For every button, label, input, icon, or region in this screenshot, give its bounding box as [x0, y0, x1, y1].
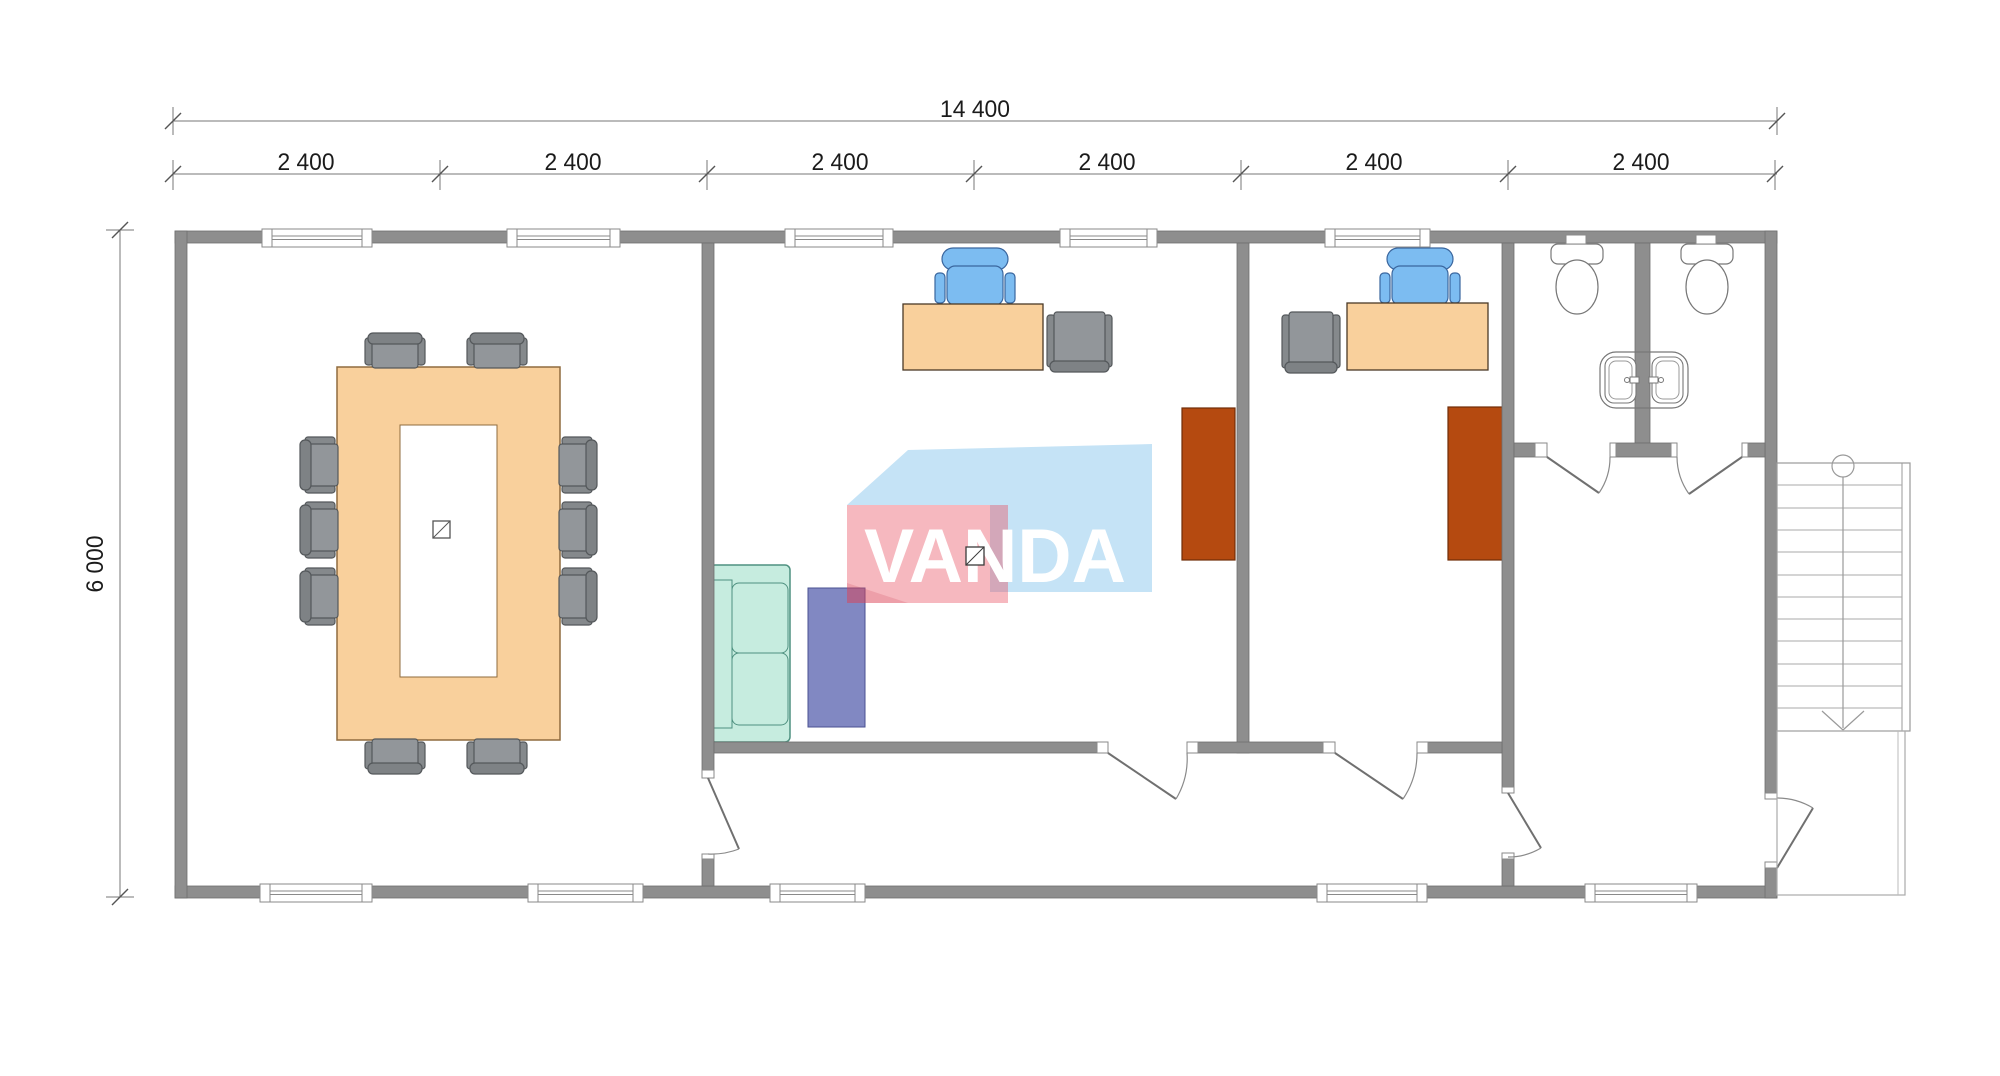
wall-conference-office1 [702, 243, 714, 770]
door-leaf [1689, 457, 1742, 494]
office1-desk-chair-armrest [1005, 273, 1015, 303]
rug [808, 588, 865, 727]
wall-corridor-b [1198, 742, 1323, 753]
door-jamb [1502, 787, 1514, 793]
floor-plan: VANDA14 4002 4002 4002 4002 4002 4002 40… [0, 0, 2000, 1076]
window-bottom-frame [528, 884, 643, 902]
conference-chair-back [300, 571, 311, 622]
cistern-button [1696, 235, 1716, 244]
office1-desk-chair-seat [947, 266, 1003, 305]
watermark-text: VANDA [864, 514, 1126, 599]
door-jamb [1417, 742, 1428, 753]
window-bottom-jamb [633, 884, 643, 902]
door-leaf [1547, 457, 1599, 493]
door-swing-arc [1403, 753, 1417, 799]
window-bottom-frame [770, 884, 865, 902]
dim-label-bay: 2 400 [1079, 149, 1136, 176]
window-bottom-frame [1317, 884, 1427, 902]
window-top-jamb [1147, 229, 1157, 247]
door-swing-arc [1599, 457, 1610, 493]
conference-chair-seat [559, 509, 590, 551]
door-jamb [1742, 443, 1748, 457]
office2-desk [1347, 303, 1488, 370]
office2-desk-chair-seat [1392, 266, 1448, 305]
window-bottom-jamb [770, 884, 780, 902]
wall-bath-divider [1635, 243, 1650, 443]
faucet [1649, 377, 1658, 383]
window-top-frame [785, 229, 893, 247]
office1-wardrobe [1182, 408, 1235, 560]
wall-bath-south-c [1748, 443, 1765, 457]
window-top-jamb [610, 229, 620, 247]
window-bottom-jamb [1585, 884, 1595, 902]
window-top-jamb [883, 229, 893, 247]
window-bottom-frame [260, 884, 372, 902]
dim-label-bay: 2 400 [1613, 149, 1670, 176]
wall-exterior-top [175, 231, 1777, 243]
conference-chair-back [368, 333, 422, 344]
conference-chair-back [586, 505, 597, 555]
conference-chair-back [586, 571, 597, 622]
dim-label-bay: 2 400 [812, 149, 869, 176]
window-top-jamb [1060, 229, 1070, 247]
wall-conference-stub [702, 859, 714, 886]
office2-desk-chair-armrest [1450, 273, 1460, 303]
window-top-jamb [262, 229, 272, 247]
door-swing-arc [1677, 457, 1689, 494]
conference-chair-seat [307, 444, 338, 486]
window-bottom-jamb [1687, 884, 1697, 902]
dim-label-total: 14 400 [940, 96, 1010, 123]
door-jamb [1765, 862, 1777, 868]
office1-side-chair-back [1050, 361, 1109, 372]
window-top-frame [262, 229, 372, 247]
wall-exterior-right-upper [1765, 231, 1777, 799]
dim-label-bay: 2 400 [1346, 149, 1403, 176]
wall-bath-south-a [1514, 443, 1535, 457]
cistern-button [1566, 235, 1586, 244]
window-top-frame [507, 229, 620, 247]
door-leaf [1335, 753, 1403, 799]
door-leaf [1777, 808, 1813, 868]
door-jamb [1097, 742, 1108, 753]
door-leaf [708, 778, 739, 849]
window-top-jamb [507, 229, 517, 247]
window-top-jamb [1325, 229, 1335, 247]
door-swing-arc [1176, 753, 1187, 799]
window-bottom-frame [1585, 884, 1697, 902]
wall-corridor-a [714, 742, 1097, 753]
window-bottom-jamb [528, 884, 538, 902]
wall-office2-bath [1502, 243, 1514, 787]
floor-plan-page: VANDA14 4002 4002 4002 4002 4002 4002 40… [0, 0, 2000, 1076]
wall-exterior-bottom [175, 886, 1777, 898]
office1-desk [903, 304, 1043, 370]
office2-side-chair-back [1285, 362, 1337, 373]
conference-chair-back [368, 763, 422, 774]
conference-chair-back [470, 333, 524, 344]
faucet [1630, 377, 1639, 383]
window-top-jamb [1420, 229, 1430, 247]
wall-exterior-left [175, 231, 187, 898]
dim-label-bay: 2 400 [545, 149, 602, 176]
sofa-cushion [732, 653, 788, 725]
wall-exterior-right-lower [1765, 868, 1777, 898]
toilet-bowl [1556, 260, 1598, 314]
conference-table-center-opening [400, 425, 497, 677]
window-top-frame [1325, 229, 1430, 247]
conference-chair-seat [559, 575, 590, 618]
conference-chair-back [586, 440, 597, 490]
conference-chair-seat [307, 575, 338, 618]
door-leaf [1508, 793, 1541, 848]
office2-side-chair-seat [1289, 312, 1333, 366]
window-top-frame [1060, 229, 1157, 247]
window-bottom-jamb [362, 884, 372, 902]
conference-chair-back [300, 505, 311, 555]
window-top-jamb [785, 229, 795, 247]
stair-landing [1777, 731, 1905, 895]
door-jamb [702, 854, 714, 859]
office2-wardrobe [1448, 407, 1503, 560]
office1-desk-chair-armrest [935, 273, 945, 303]
office2-desk-chair-armrest [1380, 273, 1390, 303]
wall-corridor-c [1428, 742, 1502, 753]
door-leaf [1108, 753, 1176, 799]
conference-chair-back [470, 763, 524, 774]
window-bottom-jamb [1317, 884, 1327, 902]
door-jamb [1671, 443, 1677, 457]
window-bottom-jamb [855, 884, 865, 902]
dim-label-bay: 2 400 [278, 149, 335, 176]
office1-side-chair-seat [1054, 312, 1105, 365]
door-jamb [1187, 742, 1198, 753]
door-swing-arc [708, 849, 739, 854]
conference-chair-seat [559, 444, 590, 486]
wall-office2-bath-stub [1502, 859, 1514, 886]
window-bottom-jamb [1417, 884, 1427, 902]
conference-chair-seat [307, 509, 338, 551]
window-bottom-jamb [260, 884, 270, 902]
door-jamb [1535, 443, 1547, 457]
door-swing-arc [1777, 798, 1813, 808]
door-jamb [1502, 853, 1514, 859]
door-jamb [1323, 742, 1335, 753]
door-jamb [1765, 793, 1777, 799]
door-jamb [1610, 443, 1616, 457]
window-top-jamb [362, 229, 372, 247]
conference-chair-back [300, 440, 311, 490]
door-jamb [702, 770, 714, 778]
sofa-cushion [732, 583, 788, 653]
dim-label-height: 6 000 [82, 536, 109, 593]
toilet-bowl [1686, 260, 1728, 314]
wall-bath-south-b [1616, 443, 1671, 457]
wall-office1-office2 [1237, 243, 1249, 753]
